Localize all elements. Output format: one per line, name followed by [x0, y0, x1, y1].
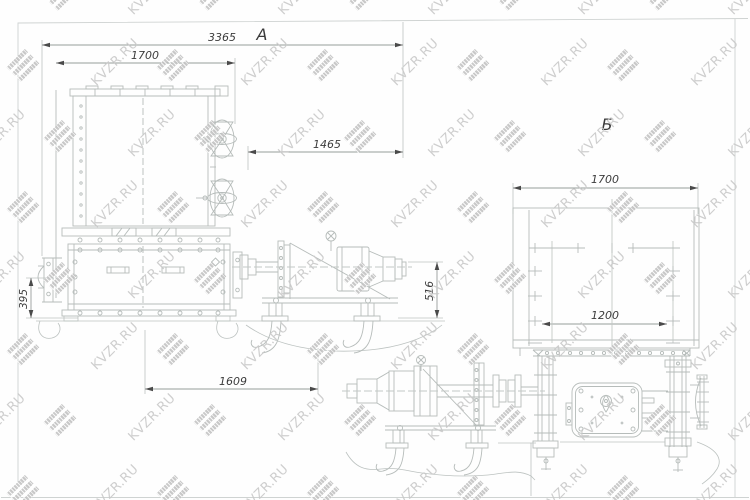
dim-core-width-b: 1700	[591, 173, 619, 186]
technical-drawing-page: 3365 1700 1465 395 1609 516 А	[0, 0, 750, 500]
view-b-left-column	[533, 356, 558, 470]
drawing-canvas: 3365 1700 1465 395 1609 516 А	[0, 0, 750, 500]
view-b-dimension-arrows	[513, 186, 698, 327]
dim-overall-length-a: 3365	[208, 31, 236, 44]
view-a-drive-assembly	[232, 231, 412, 353]
view-b-housing	[513, 199, 699, 356]
view-b-drive-assembly	[342, 356, 545, 476]
dim-base-height-a: 395	[18, 289, 30, 309]
view-a: 3365 1700 1465 395 1609 516 А	[18, 22, 445, 394]
sheet-frame	[1, 19, 749, 498]
view-b-ground	[346, 442, 719, 496]
dim-opening-width-b: 1200	[591, 309, 619, 322]
fan-top	[196, 120, 237, 158]
view-a-dimension-lines	[31, 45, 437, 389]
view-b-access-door	[566, 383, 668, 437]
view-b-label: Б	[602, 115, 613, 134]
dim-base-length-a: 1609	[219, 375, 247, 388]
view-a-dimension-arrows	[29, 43, 440, 392]
dim-drive-offset-a: 1465	[313, 138, 341, 151]
view-a-ground	[36, 316, 445, 351]
view-a-base-box	[62, 228, 242, 316]
view-a-core	[56, 86, 228, 298]
fan-bottom	[196, 179, 237, 217]
dim-core-width-a: 1700	[131, 49, 159, 62]
dim-drive-height-a: 516	[424, 281, 436, 301]
view-b-flange-strip	[533, 350, 690, 356]
view-a-extension-lines	[26, 22, 443, 394]
view-b: Б 1700 1200	[342, 115, 719, 496]
view-a-left-bracket	[38, 258, 62, 302]
view-a-label: А	[256, 25, 268, 44]
view-b-right-column	[665, 356, 709, 472]
